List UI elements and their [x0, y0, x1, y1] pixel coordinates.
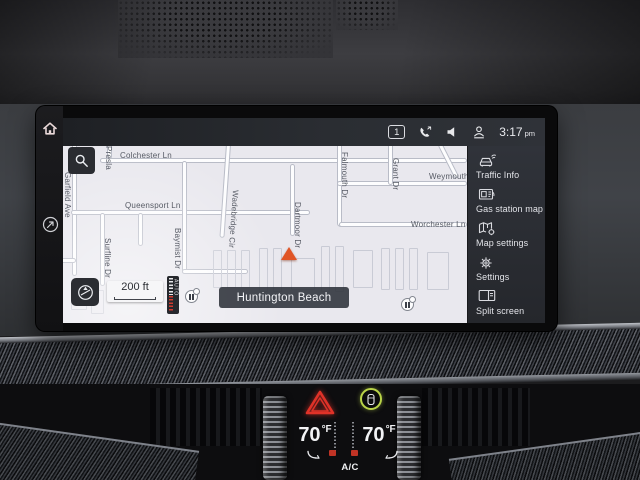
home-button[interactable]: [40, 118, 60, 138]
map-scale-control[interactable]: 200 ft: [107, 281, 163, 302]
map-poi-pin[interactable]: [401, 298, 414, 311]
street-label: Baymist Dr: [173, 228, 182, 269]
current-location-label: Huntington Beach: [219, 287, 349, 308]
sidebar-item-label: Map settings: [476, 238, 545, 248]
sidebar-item-label: Gas station map: [476, 204, 545, 214]
road: [63, 258, 76, 263]
building-outline: [227, 250, 236, 288]
scale-ruler: [114, 297, 156, 300]
compass-button[interactable]: [71, 278, 99, 306]
car-top-icon: [366, 393, 376, 406]
building-outline: [381, 248, 390, 290]
rotary-controller-icon: [41, 215, 60, 234]
notification-count-badge: 1: [388, 125, 405, 139]
zoom-segments-active: [169, 296, 173, 311]
street-label: Dartmoor Dr: [293, 202, 302, 248]
map-poi-pin[interactable]: [185, 290, 198, 303]
road: [337, 181, 467, 186]
building-outline: [353, 250, 373, 288]
street-label: Colchester Ln: [120, 151, 172, 160]
park-assist-button[interactable]: [360, 388, 382, 410]
building-outline: [409, 248, 418, 290]
street-label: Presla: [104, 146, 113, 170]
compass-icon: [76, 283, 95, 302]
location-text: Huntington Beach: [237, 292, 332, 304]
map-scale-label: 200 ft: [121, 281, 149, 293]
passenger-temp-value: 70: [362, 420, 384, 450]
air-vent-left: [150, 388, 262, 446]
vent-roller-left: [263, 396, 287, 480]
sidebar-item-split-screen[interactable]: Split screen: [476, 289, 545, 323]
temp-slider-track-left[interactable]: [334, 422, 336, 452]
shortcut-button[interactable]: [40, 214, 60, 234]
building-outline: [259, 248, 268, 292]
traffic-info-icon: [478, 153, 545, 169]
vent-direction-icon-left: [306, 450, 321, 461]
split-screen-icon: [478, 289, 545, 305]
time-value: 3:17: [499, 125, 522, 139]
building-outline: [213, 250, 222, 288]
sidebar-item-label: Split screen: [476, 306, 545, 316]
temp-slider-handle-left[interactable]: [329, 450, 336, 456]
driver-profile-icon: [472, 125, 486, 139]
phone-call-icon: [418, 126, 433, 139]
road: [71, 210, 310, 215]
building-outline: [335, 246, 344, 292]
clock: 3:17 pm: [499, 125, 535, 139]
sidebar-item-settings[interactable]: Settings: [476, 255, 545, 289]
auto-zoom-slider[interactable]: AUTO: [167, 276, 179, 314]
street-label: Wadebridge Cir: [227, 190, 240, 249]
status-bar: 1 3:17 pm: [63, 118, 545, 146]
street-label: Queensport Ln: [125, 201, 181, 210]
infotainment-photo: 70 °F 70 °F A/C: [0, 0, 640, 480]
driver-temp-display: 70 °F: [292, 420, 338, 454]
vehicle-position-marker: [281, 247, 297, 260]
screen-left-rail: [36, 106, 63, 331]
building-outline: [321, 246, 330, 292]
passenger-temp-unit: °F: [386, 424, 396, 435]
vent-direction-icon-right: [384, 450, 399, 461]
sidebar-item-label: Settings: [476, 272, 545, 282]
auto-zoom-label: AUTO: [173, 279, 179, 296]
navigation-map[interactable]: Colchester Ln Garfield Ave Queensport Ln…: [63, 146, 467, 323]
street-label: Falmouth Dr: [340, 152, 349, 198]
street-label: Surfline Dr: [103, 238, 112, 278]
ac-button[interactable]: A/C: [332, 460, 368, 474]
road: [138, 213, 143, 246]
road: [182, 161, 187, 274]
street-label: Weymouth: [429, 172, 467, 181]
sidebar-item-map-settings[interactable]: Map settings: [476, 221, 545, 255]
settings-gear-icon: [478, 255, 545, 271]
map-settings-icon: [478, 221, 545, 237]
temp-slider-handle-right[interactable]: [351, 450, 358, 456]
infotainment-screen: 1 3:17 pm: [36, 106, 557, 331]
street-label: Grant Dr: [391, 158, 400, 190]
map-search-button[interactable]: [68, 147, 95, 174]
building-outline: [291, 258, 315, 290]
dash-shadow: [0, 0, 640, 120]
driver-temp-unit: °F: [322, 424, 332, 435]
driver-temp-value: 70: [298, 420, 320, 450]
gas-station-icon: [478, 187, 545, 203]
center-console: 70 °F 70 °F A/C: [0, 384, 640, 480]
sidebar-item-label: Traffic Info: [476, 170, 545, 180]
hazard-lights-button[interactable]: [301, 387, 339, 417]
map-menu-sidebar: Traffic Info Gas station map: [467, 146, 545, 323]
sidebar-item-gas-station-map[interactable]: Gas station map: [476, 187, 545, 221]
street-label: Worchester Ln: [411, 220, 465, 229]
search-icon: [74, 153, 90, 169]
street-label: Garfield Ave: [63, 172, 72, 218]
building-outline: [427, 252, 449, 290]
sidebar-item-traffic-info[interactable]: Traffic Info: [476, 153, 545, 187]
building-outline: [395, 248, 404, 290]
passenger-temp-display: 70 °F: [356, 420, 402, 454]
ac-label: A/C: [341, 462, 358, 473]
speaker-icon: [446, 126, 459, 138]
time-period: pm: [525, 129, 535, 138]
home-icon: [42, 121, 58, 136]
building-outline: [241, 250, 250, 288]
temp-slider-track-right[interactable]: [352, 422, 354, 452]
air-vent-right: [422, 388, 530, 446]
